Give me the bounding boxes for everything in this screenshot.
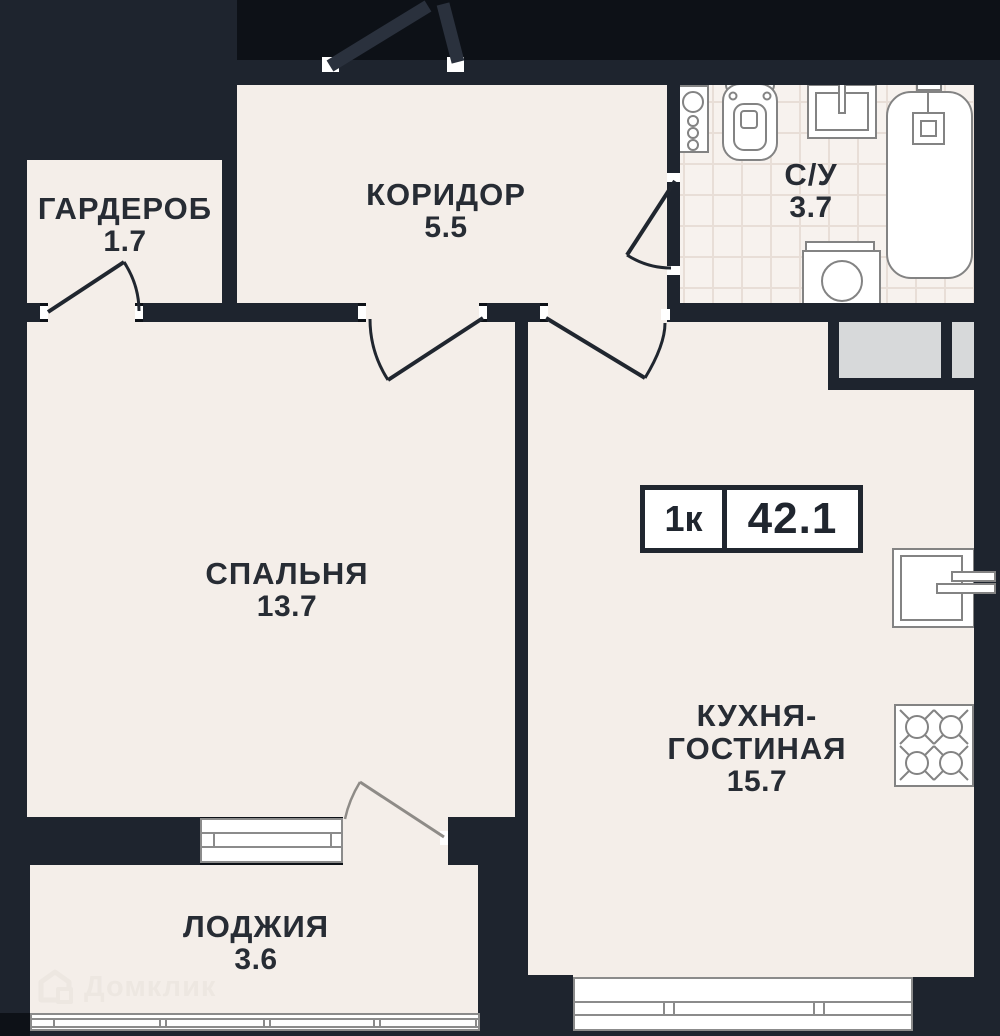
jamb-kuhnya-left [540, 306, 548, 319]
label-koridor: КОРИДОР 5.5 [366, 178, 526, 244]
area-badge: 1к 42.1 [640, 485, 863, 553]
domclick-logo-icon [36, 968, 74, 1006]
jamb-lodzhiya [440, 831, 448, 845]
domclick-watermark: Домклик [36, 968, 216, 1006]
wall-middle-c [667, 303, 974, 322]
entrance-door [330, 4, 458, 66]
window-loggia [30, 1013, 480, 1031]
wall-middle-t [487, 303, 540, 322]
wall-bedroom-bottom-right [448, 817, 528, 865]
wall-bottom-corner [478, 975, 573, 1036]
jamb-spalnya-right [479, 306, 487, 319]
wall-loggia-right [478, 865, 528, 977]
label-kuhnya-gostinaya: КУХНЯ- ГОСТИНАЯ 15.7 [667, 699, 846, 798]
label-su: С/У 3.7 [784, 158, 837, 224]
label-spalnya: СПАЛЬНЯ 13.7 [205, 557, 368, 623]
badge-room-count: 1к [645, 490, 727, 548]
wall-shaft-mid [941, 322, 952, 378]
wall-bottom-right-block [913, 977, 1000, 1036]
jamb-garderob-left [40, 306, 48, 319]
jamb-entrance-left [322, 57, 339, 72]
wall-garderob-right [222, 60, 237, 322]
jamb-su-top [667, 173, 680, 182]
label-lodzhiya: ЛОДЖИЯ 3.6 [183, 910, 329, 976]
wall-koridor-su [667, 85, 680, 322]
wall-outer-top [237, 60, 974, 85]
doorway-kuhnya [548, 303, 667, 322]
doorway-garderob [48, 303, 135, 322]
vent-shaft [839, 322, 941, 378]
wall-middle-a [27, 303, 40, 322]
jamb-su-bottom [667, 266, 680, 275]
wall-bedroom-bottom-left [0, 817, 200, 865]
watermark-text: Домклик [84, 971, 216, 1004]
sill-kitchen [573, 1031, 913, 1036]
vent-shaft-narrow [952, 322, 974, 378]
wall-outer-left [0, 160, 27, 865]
jamb-entrance-right [447, 57, 464, 72]
room-kuhnya-gostinaya [528, 322, 974, 977]
wall-shaft-bottom [828, 378, 974, 390]
jamb-kuhnya-right [661, 309, 670, 320]
jamb-garderob-right [135, 306, 143, 319]
wall-divider [515, 322, 528, 865]
wall-outer-right [974, 60, 1000, 1036]
jamb-spalnya-left [358, 306, 366, 319]
wall-top-left-block [0, 0, 237, 160]
doorway-spalnya [366, 303, 479, 322]
label-garderob: ГАРДЕРОБ 1.7 [38, 192, 212, 258]
doorway-lodzhiya [343, 817, 448, 865]
window-bedroom-loggia [200, 818, 343, 863]
wall-loggia-left [0, 865, 30, 1013]
floor-plan: ГАРДЕРОБ 1.7 КОРИДОР 5.5 С/У 3.7 СПАЛЬНЯ… [0, 0, 1000, 1036]
sill-loggia [30, 1031, 487, 1036]
wall-middle-b [143, 303, 358, 322]
window-kitchen [573, 977, 913, 1031]
badge-total-area: 42.1 [727, 490, 858, 548]
